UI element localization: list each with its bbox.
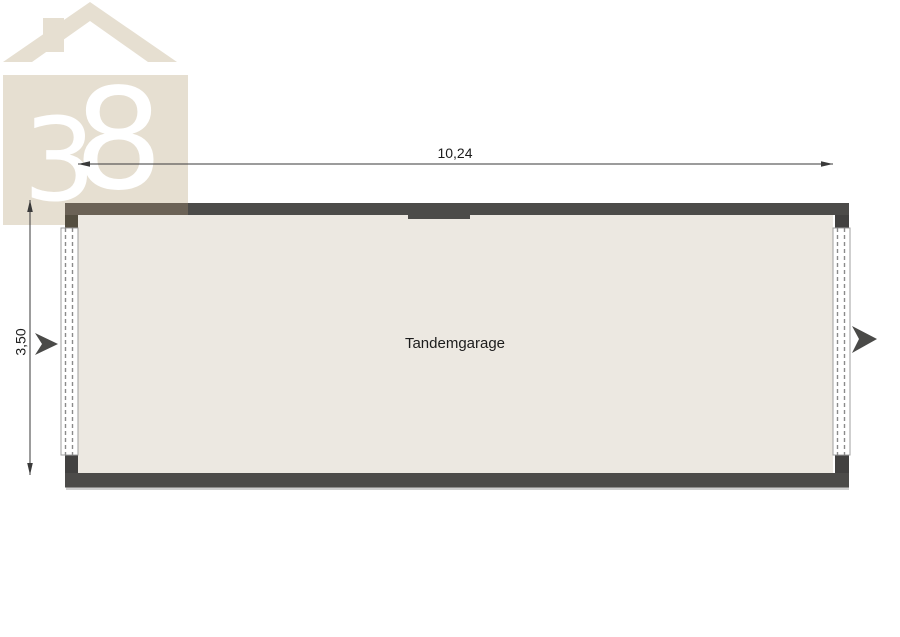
drive-direction-arrow-left-icon (35, 333, 58, 355)
garage-door-left-frame (61, 228, 78, 455)
width-dimension: 10,24 (78, 145, 833, 167)
room-label: Tandemgarage (405, 335, 505, 352)
floorplan-svg: 3 8 10,24 3,50 (0, 0, 900, 637)
logo-digit-8: 8 (74, 59, 163, 222)
wall-top-over-logo (65, 203, 188, 215)
logo: 3 8 (3, 2, 188, 228)
height-dimension: 3,50 (13, 200, 33, 475)
garage-door-right (833, 228, 850, 455)
garage-door-left (61, 228, 78, 455)
drive-direction-arrow-right-icon (852, 326, 877, 353)
wall-top (188, 203, 849, 215)
wall-top-notch (408, 215, 470, 219)
corner-post-top-left (65, 215, 78, 228)
corner-post-bottom-right (835, 455, 849, 473)
wall-bottom (65, 473, 849, 488)
garage-plan: Tandemgarage (35, 203, 877, 490)
garage-door-right-frame (833, 228, 850, 455)
wall-shadow (66, 488, 849, 491)
logo-roof-icon (3, 2, 177, 62)
height-dim-arrow-bottom-icon (27, 463, 33, 475)
width-dim-arrow-right-icon (821, 161, 833, 167)
height-dimension-label: 3,50 (13, 328, 29, 355)
corner-post-bottom-left (65, 455, 78, 473)
corner-post-top-right (835, 215, 849, 228)
floorplan-canvas: 3 8 10,24 3,50 (0, 0, 900, 637)
width-dimension-label: 10,24 (437, 145, 472, 161)
